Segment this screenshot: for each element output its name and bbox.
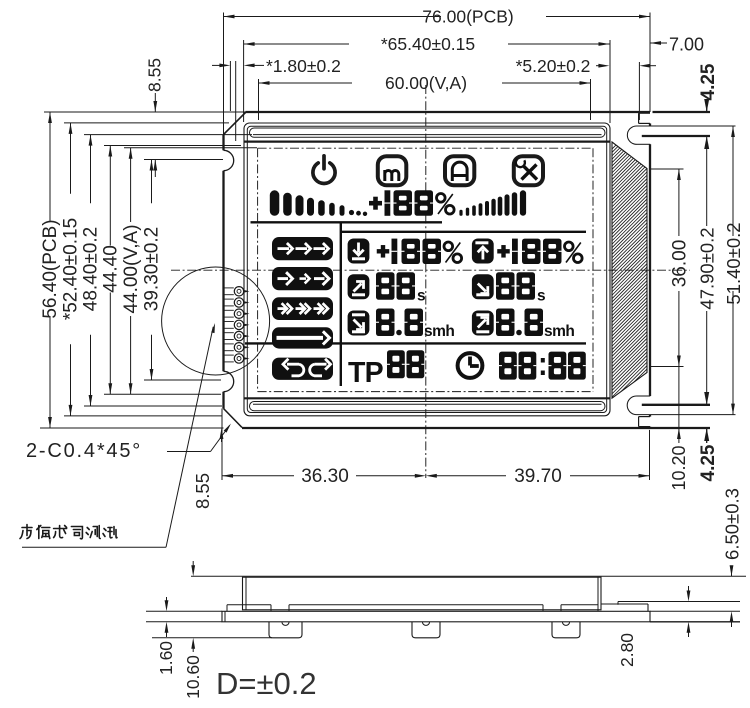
svg-text:7.00: 7.00 [669,35,704,55]
svg-text:36.30: 36.30 [301,466,349,487]
svg-text:*65.40±0.15: *65.40±0.15 [381,34,475,54]
svg-text:smh: smh [424,323,454,340]
svg-text:47.90±0.2: 47.90±0.2 [697,227,718,309]
svg-text:44.40: 44.40 [101,245,122,293]
svg-text:D=±0.2: D=±0.2 [216,666,317,701]
svg-text:56.40(PCB): 56.40(PCB) [40,219,61,318]
svg-text:smh: smh [544,323,574,340]
svg-text:*1.80±0.2: *1.80±0.2 [266,56,341,76]
svg-text:44.00(V,A): 44.00(V,A) [121,224,142,313]
svg-text:60.00(V,A): 60.00(V,A) [385,73,467,93]
svg-text:4.25: 4.25 [698,63,719,100]
svg-text:8.55: 8.55 [145,58,165,92]
svg-text:6.50±0.3: 6.50±0.3 [722,488,743,560]
svg-text:*5.20±0.2: *5.20±0.2 [516,56,591,76]
svg-text:2-C0.4*45°: 2-C0.4*45° [26,440,142,462]
svg-text:TP: TP [348,357,384,389]
svg-text:39.30±0.2: 39.30±0.2 [142,227,163,311]
svg-text:*52.40±0.15: *52.40±0.15 [61,218,82,320]
svg-text:1.60: 1.60 [156,641,176,675]
svg-text:39.70: 39.70 [514,466,562,487]
svg-text:2.80: 2.80 [617,633,637,667]
svg-text:10.20: 10.20 [669,445,689,490]
svg-text:4.25: 4.25 [698,444,719,481]
svg-text:s: s [537,288,546,305]
svg-text:76.00(PCB): 76.00(PCB) [422,7,513,27]
svg-text:10.60: 10.60 [183,655,203,699]
svg-text:48.40±0.2: 48.40±0.2 [81,227,102,311]
svg-text:51.40±0.2: 51.40±0.2 [723,222,744,304]
svg-text:8.55: 8.55 [192,473,213,509]
svg-text:s: s [417,288,426,305]
svg-text:36.00: 36.00 [670,240,691,288]
